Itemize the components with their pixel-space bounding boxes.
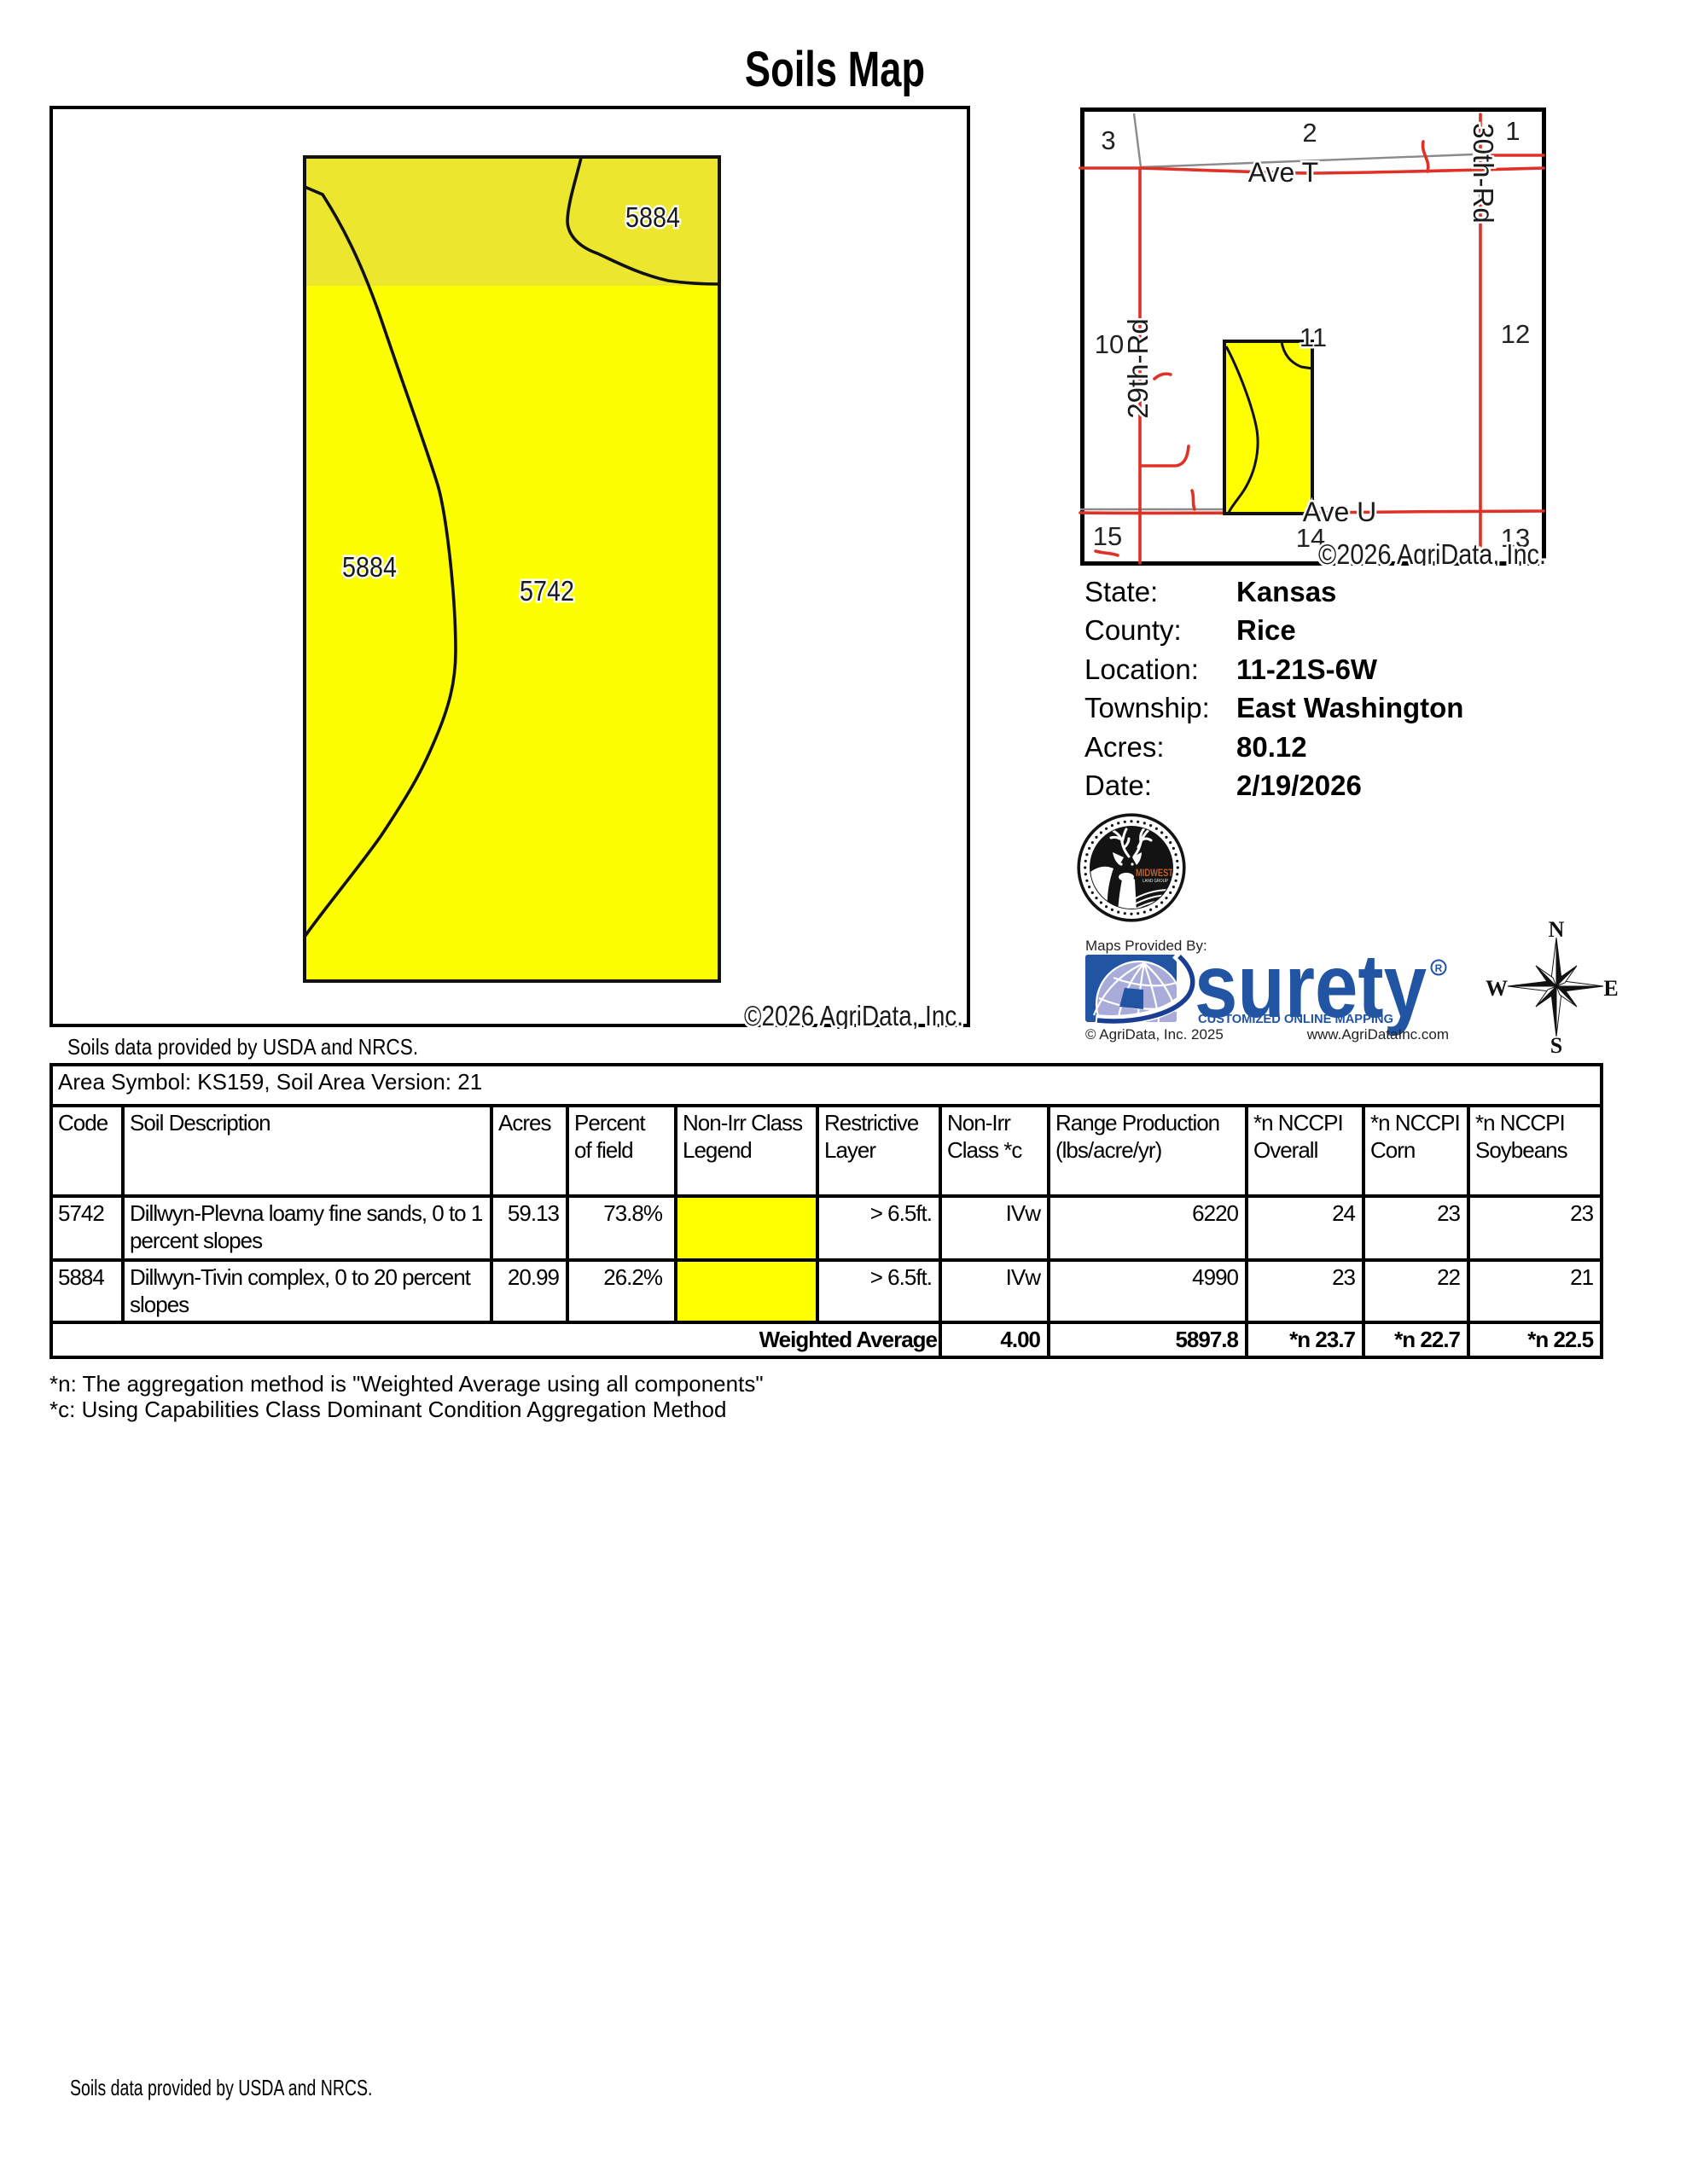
svg-text:30th-Rd: 30th-Rd bbox=[1468, 123, 1499, 223]
svg-text:5884: 5884 bbox=[342, 551, 397, 583]
svg-text:Ave T: Ave T bbox=[1248, 157, 1318, 188]
svg-text:1: 1 bbox=[1505, 116, 1520, 146]
svg-text:3: 3 bbox=[1101, 125, 1115, 155]
svg-text:CUSTOMIZED ONLINE MAPPING: CUSTOMIZED ONLINE MAPPING bbox=[1198, 1013, 1393, 1026]
svg-text:29th-Rd: 29th-Rd bbox=[1122, 318, 1154, 418]
svg-text:12: 12 bbox=[1501, 319, 1530, 349]
svg-text:E: E bbox=[1603, 976, 1618, 1001]
svg-text:©2026 AgriData, Inc.: ©2026 AgriData, Inc. bbox=[1318, 538, 1546, 566]
svg-text:Ave U: Ave U bbox=[1303, 497, 1377, 527]
svg-text:LAND GROUP: LAND GROUP bbox=[1143, 879, 1169, 884]
svg-text:5884: 5884 bbox=[625, 201, 680, 233]
svg-text:R: R bbox=[1435, 962, 1443, 974]
svg-text:W: W bbox=[1486, 976, 1508, 1001]
svg-text:MIDWEST: MIDWEST bbox=[1136, 868, 1173, 879]
svg-text:5742: 5742 bbox=[520, 575, 574, 607]
svg-text:©2026 AgriData, Inc.: ©2026 AgriData, Inc. bbox=[744, 1000, 963, 1029]
svg-text:15: 15 bbox=[1093, 521, 1122, 551]
svg-text:N: N bbox=[1549, 917, 1565, 942]
svg-text:S: S bbox=[1550, 1033, 1562, 1058]
svg-text:11: 11 bbox=[1300, 322, 1327, 352]
svg-text:10: 10 bbox=[1095, 329, 1124, 359]
svg-text:2: 2 bbox=[1302, 118, 1317, 148]
